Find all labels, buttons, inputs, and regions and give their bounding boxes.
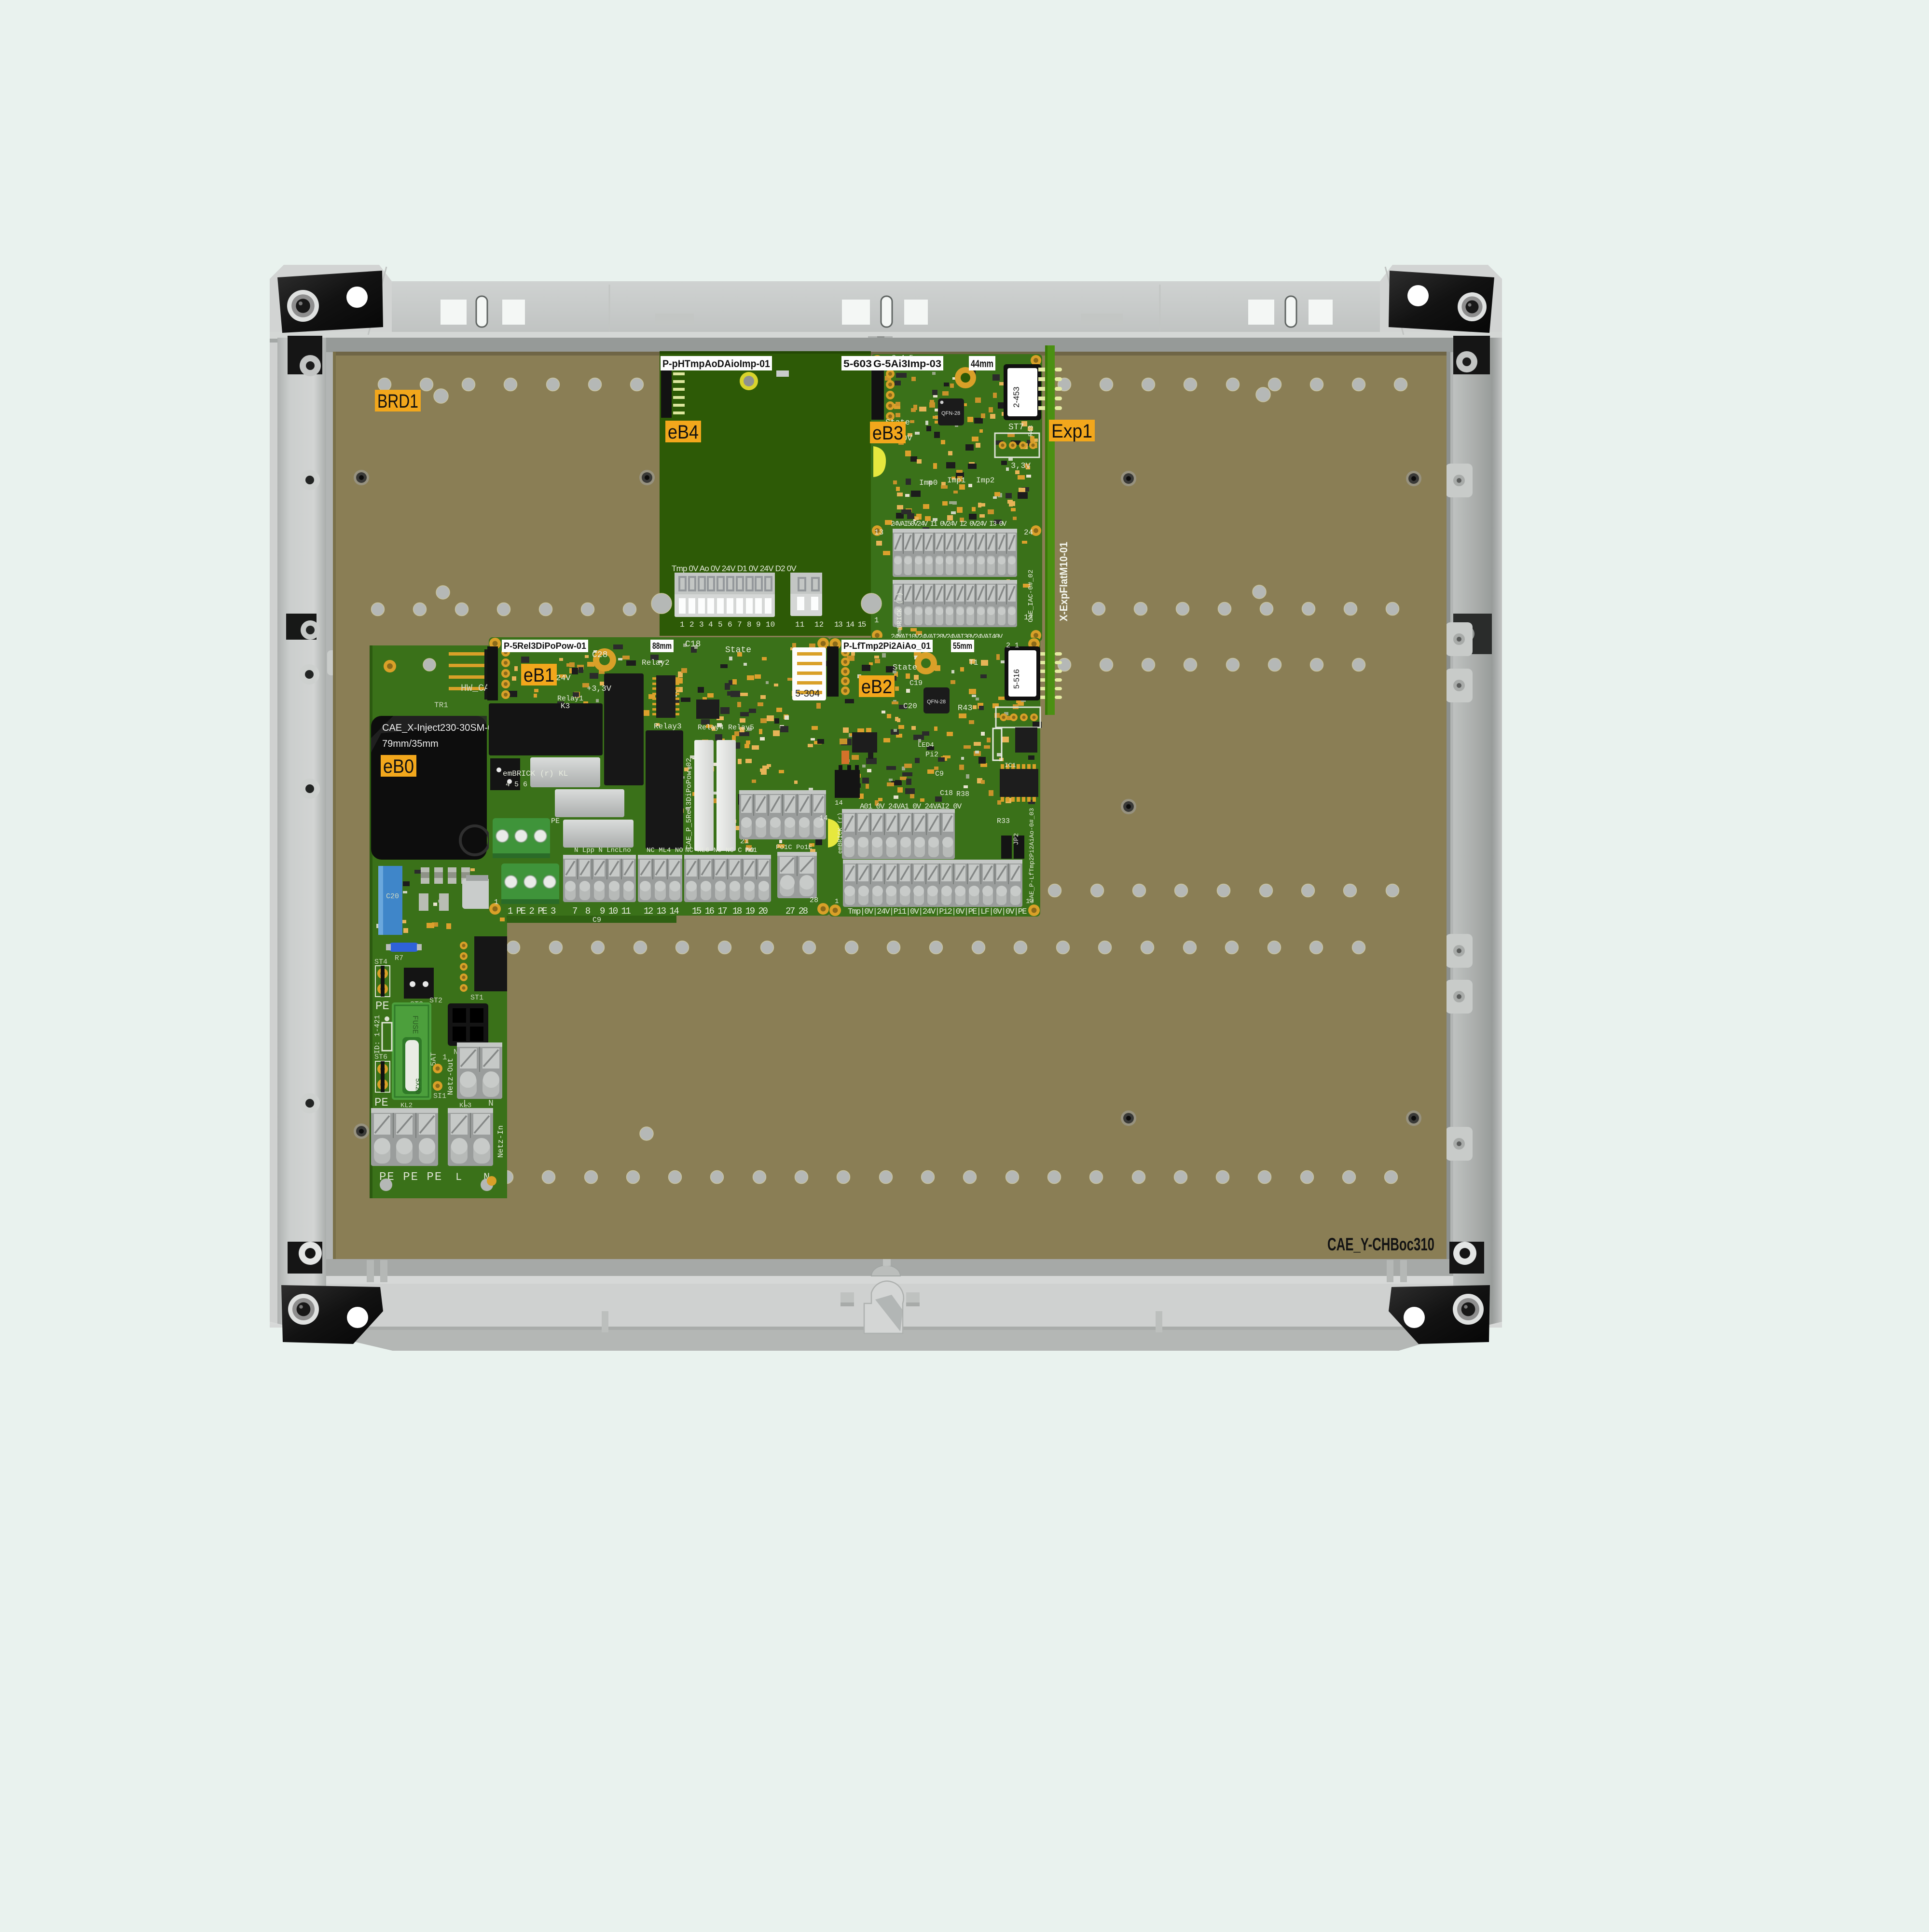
svg-text:C19: C19 bbox=[909, 679, 923, 687]
svg-text:C9: C9 bbox=[592, 916, 601, 924]
svg-text:1: 1 bbox=[680, 620, 685, 629]
svg-text:L: L bbox=[455, 1171, 462, 1183]
svg-text:ST2: ST2 bbox=[429, 997, 442, 1005]
svg-text:5-516: 5-516 bbox=[1013, 669, 1021, 689]
svg-text:X-ExpFlatM10-01: X-ExpFlatM10-01 bbox=[1058, 542, 1070, 621]
svg-text:R33: R33 bbox=[997, 817, 1010, 825]
svg-text:T1: T1 bbox=[969, 658, 978, 667]
svg-text:7: 7 bbox=[737, 620, 742, 629]
svg-text:ST6: ST6 bbox=[374, 1053, 387, 1061]
svg-text:G-5Ai3Imp-03: G-5Ai3Imp-03 bbox=[873, 358, 941, 370]
svg-text:10: 10 bbox=[766, 620, 775, 629]
svg-text:Tmp 0V Ao 0V 24V D1 0V 24V D2: Tmp 0V Ao 0V 24V D1 0V 24V D2 0V bbox=[672, 564, 797, 573]
svg-text:Imp0: Imp0 bbox=[919, 479, 937, 487]
svg-text:27 28: 27 28 bbox=[785, 906, 808, 917]
svg-text:P-pHTmpAoDAioImp-01: P-pHTmpAoDAioImp-01 bbox=[662, 358, 770, 370]
svg-text:13 14 15: 13 14 15 bbox=[834, 620, 866, 629]
svg-text:8: 8 bbox=[747, 620, 752, 629]
svg-text:BRD1: BRD1 bbox=[377, 391, 418, 412]
svg-text:5-603: 5-603 bbox=[843, 358, 872, 370]
svg-text:9 10 11: 9 10 11 bbox=[600, 906, 631, 917]
svg-text:Relay3: Relay3 bbox=[654, 722, 682, 731]
svg-text:28: 28 bbox=[810, 896, 818, 904]
svg-text:R43: R43 bbox=[958, 704, 973, 713]
svg-text:Relay2: Relay2 bbox=[642, 658, 670, 667]
svg-text:15 16 17: 15 16 17 bbox=[692, 906, 727, 917]
svg-text:12: 12 bbox=[814, 620, 824, 629]
svg-text:88mm: 88mm bbox=[652, 641, 672, 651]
svg-text:eB1: eB1 bbox=[524, 665, 554, 686]
svg-text:PE: PE bbox=[375, 1000, 389, 1013]
svg-text:K3: K3 bbox=[561, 702, 570, 711]
svg-text:ST4: ST4 bbox=[374, 958, 387, 966]
svg-text:eB4: eB4 bbox=[668, 422, 699, 443]
svg-text:Imp2: Imp2 bbox=[976, 476, 994, 485]
svg-text:7 8: 7 8 bbox=[572, 906, 592, 917]
svg-text:ST7: ST7 bbox=[1008, 423, 1024, 432]
svg-text:24: 24 bbox=[1024, 528, 1033, 537]
svg-text:R7: R7 bbox=[395, 954, 403, 962]
svg-text:Exp1: Exp1 bbox=[1051, 421, 1092, 442]
svg-text:24V: 24V bbox=[556, 674, 571, 683]
svg-text:JP2: JP2 bbox=[1013, 833, 1020, 845]
svg-text:eB2: eB2 bbox=[861, 676, 892, 698]
svg-text:55mm: 55mm bbox=[953, 641, 972, 651]
svg-text:4: 4 bbox=[708, 620, 713, 629]
svg-text:emBRICK (r): emBRICK (r) bbox=[503, 769, 554, 778]
svg-text:12 13 14: 12 13 14 bbox=[644, 906, 679, 917]
svg-text:1 PE 2 PE 3: 1 PE 2 PE 3 bbox=[508, 906, 556, 917]
svg-text:CAE_Y-CHBoc310: CAE_Y-CHBoc310 bbox=[1327, 1234, 1434, 1254]
svg-text:R38: R38 bbox=[956, 790, 969, 798]
svg-text:14: 14 bbox=[819, 814, 828, 822]
svg-text:Po1C Po1E: Po1C Po1E bbox=[776, 844, 813, 851]
svg-text:N Lpp N LncLno: N Lpp N LncLno bbox=[574, 847, 631, 854]
svg-text:C18: C18 bbox=[940, 789, 953, 797]
svg-text:Pi2: Pi2 bbox=[925, 751, 938, 759]
svg-text:C18: C18 bbox=[685, 640, 701, 649]
svg-text:3: 3 bbox=[699, 620, 704, 629]
svg-text:5-304: 5-304 bbox=[795, 688, 820, 699]
svg-text:1: 1 bbox=[874, 616, 879, 625]
svg-text:2-453: 2-453 bbox=[1012, 387, 1021, 408]
svg-text:CAE_IAC-0#_02: CAE_IAC-0#_02 bbox=[1027, 570, 1035, 622]
svg-text:Netz-Out: Netz-Out bbox=[446, 1058, 455, 1095]
svg-text:2 1: 2 1 bbox=[1006, 642, 1019, 650]
svg-text:State: State bbox=[893, 663, 917, 672]
svg-text:4 5 6: 4 5 6 bbox=[506, 781, 527, 789]
svg-text:QFN-28: QFN-28 bbox=[927, 699, 946, 705]
svg-text:24VAI50V24V I1 0V24V I2 0V24V: 24VAI50V24V I1 0V24V I2 0V24V I3 0V bbox=[891, 520, 1006, 528]
svg-text:5: 5 bbox=[718, 620, 723, 629]
svg-text:9: 9 bbox=[756, 620, 761, 629]
svg-text:C9: C9 bbox=[935, 770, 944, 778]
svg-text:ST1: ST1 bbox=[470, 994, 483, 1002]
svg-text:QFN-28: QFN-28 bbox=[941, 411, 960, 416]
svg-text:P-5Rel3DiPoPow-01: P-5Rel3DiPoPow-01 bbox=[504, 641, 586, 651]
svg-text:R43: R43 bbox=[1027, 425, 1034, 437]
svg-text:CAE_X-Inject230-30SM-01: CAE_X-Inject230-30SM-01 bbox=[382, 723, 498, 733]
svg-text:PE: PE bbox=[374, 1096, 388, 1110]
svg-text:6: 6 bbox=[728, 620, 732, 629]
svg-text:Tmp|0V|24V|Pi1|0V|24V|Pi2|0V|P: Tmp|0V|24V|Pi1|0V|24V|Pi2|0V|PE|LF|0V|0V… bbox=[848, 907, 1027, 917]
svg-text:LED4: LED4 bbox=[918, 741, 934, 749]
svg-text:2: 2 bbox=[689, 620, 694, 629]
svg-text:Imp1: Imp1 bbox=[947, 476, 965, 485]
svg-text:79mm/35mm: 79mm/35mm bbox=[382, 739, 439, 749]
svg-text:C20: C20 bbox=[903, 702, 917, 711]
svg-text:1: 1 bbox=[835, 898, 839, 905]
svg-text:Netz-In: Netz-In bbox=[496, 1125, 505, 1158]
svg-text:44mm: 44mm bbox=[971, 358, 993, 370]
svg-text:CAE_P_5Rel3DiPoPow-02: CAE_P_5Rel3DiPoPow-02 bbox=[685, 758, 693, 849]
svg-text:5X20: 5X20 bbox=[413, 1078, 421, 1095]
svg-text:1: 1 bbox=[494, 898, 498, 906]
svg-text:3,3V: 3,3V bbox=[1011, 462, 1031, 471]
svg-text:KL: KL bbox=[559, 769, 568, 778]
svg-text:State: State bbox=[725, 645, 751, 655]
svg-text:C28: C28 bbox=[592, 650, 607, 660]
svg-text:ID: 1-421: ID: 1-421 bbox=[373, 1015, 382, 1054]
svg-text:Relay4 Relay5: Relay4 Relay5 bbox=[698, 724, 754, 732]
svg-text:N: N bbox=[488, 1099, 494, 1109]
svg-text:P-LfTmp2Pi2AiAo_01: P-LfTmp2Pi2AiAo_01 bbox=[843, 641, 931, 651]
svg-text:HW_CA: HW_CA bbox=[461, 683, 490, 694]
svg-text:PE: PE bbox=[551, 817, 560, 825]
svg-text:C20: C20 bbox=[386, 892, 399, 901]
svg-text:TR1: TR1 bbox=[434, 701, 448, 710]
svg-text:eB3: eB3 bbox=[872, 423, 903, 444]
svg-text:CAE_P-LfTmp2Pi2AiAo-0#_03: CAE_P-LfTmp2Pi2AiAo-0#_03 bbox=[1028, 808, 1035, 902]
svg-text:18 19 20: 18 19 20 bbox=[732, 906, 768, 917]
svg-text:emBRICK (r): emBRICK (r) bbox=[896, 592, 904, 637]
svg-text:FUSE: FUSE bbox=[411, 1015, 419, 1034]
svg-text:+3,3V: +3,3V bbox=[587, 685, 612, 694]
svg-text:11: 11 bbox=[795, 620, 804, 629]
svg-text:NC ML4 NO: NC ML4 NO bbox=[647, 847, 683, 854]
svg-text:IC1: IC1 bbox=[1005, 762, 1016, 769]
svg-text:NC RL6 NO NC C NO: NC RL6 NO NC C NO bbox=[685, 847, 754, 854]
svg-text:eB0: eB0 bbox=[383, 756, 414, 777]
svg-text:SI1: SI1 bbox=[433, 1092, 446, 1100]
svg-text:13: 13 bbox=[874, 528, 883, 537]
svg-text:14: 14 bbox=[835, 799, 843, 807]
